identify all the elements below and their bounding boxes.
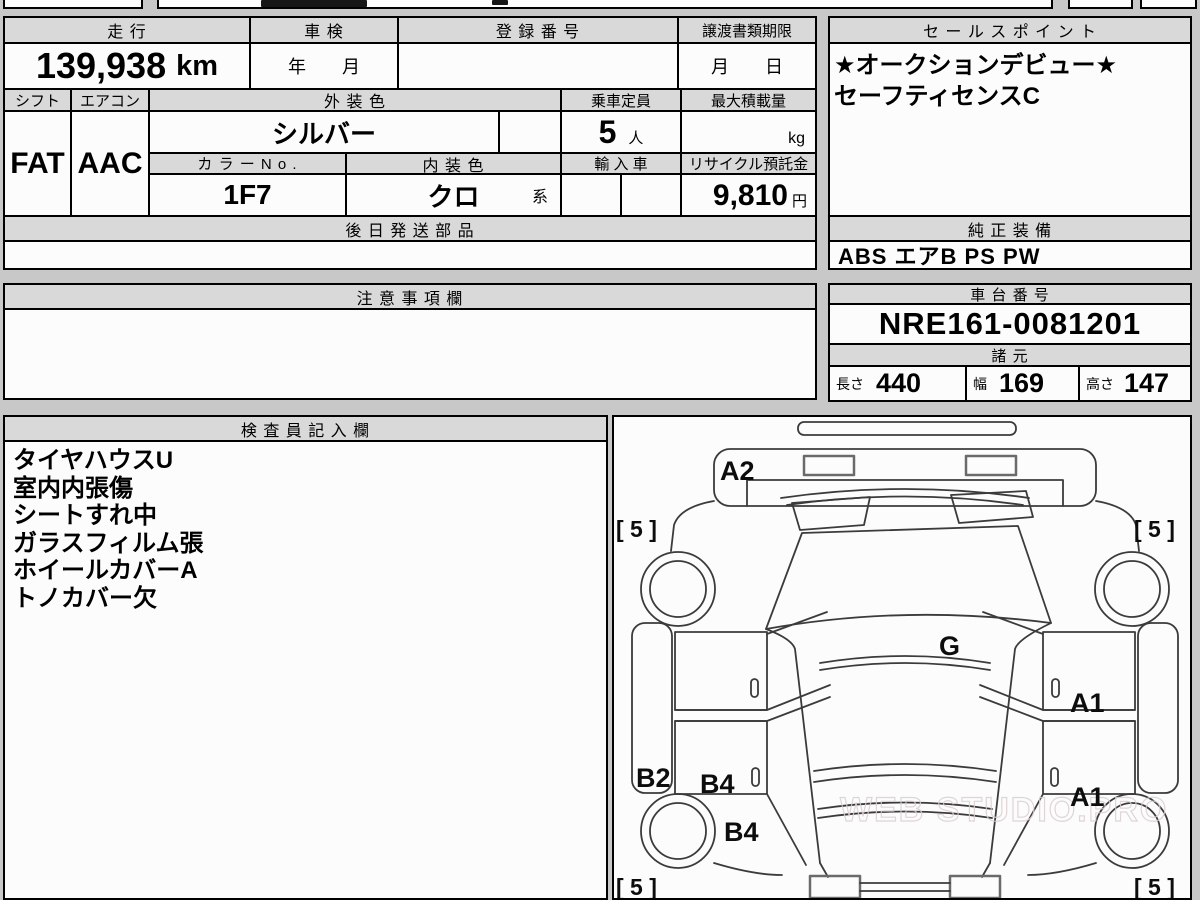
left-rear-quarter-line: [767, 794, 806, 865]
interior-color-text: クロ: [427, 177, 479, 214]
spec-width: 幅 169: [967, 367, 1080, 400]
notes-panel: 注 意 事 項 欄: [3, 283, 817, 400]
rear-left-wheel: [641, 794, 715, 868]
left-door-slant: [767, 612, 827, 634]
windshield-shape: [766, 526, 1051, 629]
interior-color-suffix: 系: [532, 183, 548, 207]
right-sill-shape: [1138, 623, 1178, 793]
chassis-specs-panel: 車 台 番 号 NRE161-0081201 諸 元 長さ 440 幅 169 …: [828, 283, 1192, 402]
imported-cell-1: [562, 175, 622, 217]
cabin-band-line: [814, 764, 996, 771]
inspection-value: 年 月: [251, 44, 399, 90]
inspector-notes-header: 検 査 員 記 入 欄: [5, 417, 606, 442]
sales-point-body: ★オークションデビュー★ セーフティセンスC: [830, 44, 1190, 217]
clipped-top-cell: [1140, 0, 1197, 9]
left-front-fender-line: [671, 501, 714, 551]
mileage-header: 走 行: [5, 18, 251, 44]
recycle-deposit-number: 9,810: [713, 181, 788, 211]
car-top-view-diagram: WEB STUDIO.PRO A2 G A1 A1 B2 B4 B4 [ 5 ]…: [614, 417, 1190, 898]
cabin-left-edge: [766, 629, 820, 863]
registration-value: [399, 44, 679, 90]
tire-depth-rear-left: [ 5 ]: [616, 874, 657, 898]
spec-height: 高さ 147: [1080, 367, 1190, 400]
taillight-shape: [810, 876, 860, 898]
mileage-value: 139,938 km: [5, 44, 251, 90]
wiper-zone-shape: [792, 497, 870, 530]
taillight-shape: [950, 876, 1000, 898]
front-bumper-shape: [714, 449, 1096, 506]
tire-depth-rear-right: [ 5 ]: [1134, 874, 1175, 898]
color-no-header: カ ラ ー N o .: [150, 154, 347, 175]
mileage-number: 139,938: [36, 45, 166, 87]
damage-label-a1-front: A1: [1070, 688, 1105, 718]
front-left-wheel: [641, 552, 715, 626]
recycle-deposit-header: リサイクル預託金: [682, 154, 815, 175]
height-label: 高さ: [1086, 374, 1114, 394]
inspector-notes-panel: 検 査 員 記 入 欄 タイヤハウスU 室内内張傷 シートすれ中 ガラスフィルム…: [3, 415, 608, 900]
shift-header: シフト: [5, 90, 72, 112]
inspector-note-line: ガラスフィルム張: [13, 530, 614, 558]
clipped-text-remnant: [492, 0, 508, 5]
damage-label-a1-rear: A1: [1070, 782, 1105, 812]
length-label: 長さ: [836, 374, 864, 394]
rear-left-wheel-inner: [650, 803, 706, 859]
exterior-color-code-cell: [500, 112, 562, 154]
capacity-value: 5 人: [562, 112, 682, 154]
shift-value: FAT: [5, 112, 72, 217]
sales-point-line: ★オークションデビュー★: [834, 50, 1186, 81]
clipped-top-cell: [157, 0, 1053, 9]
door-handle-icon: [1052, 679, 1059, 697]
right-front-fender-line: [1096, 501, 1139, 551]
capacity-unit: 人: [628, 127, 643, 148]
tire-depth-front-right: [ 5 ]: [1134, 516, 1175, 542]
capacity-number: 5: [599, 116, 617, 148]
left-crease-line: [675, 697, 830, 721]
registration-header: 登 録 番 号: [399, 18, 679, 44]
cabin-band-line: [820, 663, 990, 670]
cabin-band-line: [820, 656, 990, 663]
inspection-header: 車 検: [251, 18, 399, 44]
roof-strip-shape: [798, 422, 1016, 435]
width-label: 幅: [973, 374, 987, 394]
notes-body: [5, 310, 815, 398]
capacity-header: 乗車定員: [562, 90, 682, 112]
later-parts-header: 後 日 発 送 部 品: [5, 217, 815, 242]
mileage-unit: km: [176, 50, 218, 83]
exterior-color-value: シルバー: [150, 112, 500, 154]
inspector-note-line: タイヤハウスU: [13, 447, 614, 475]
watermark: WEB STUDIO.PRO: [840, 791, 1168, 829]
max-load-header: 最大積載量: [682, 90, 815, 112]
spec-length: 長さ 440: [830, 367, 967, 400]
notes-header: 注 意 事 項 欄: [5, 285, 815, 310]
damage-label-b2: B2: [636, 763, 671, 793]
left-front-door-shape: [675, 632, 767, 710]
inspector-note-line: ホイールカバーA: [13, 557, 614, 585]
door-handle-icon: [752, 768, 759, 786]
tire-depth-front-left: [ 5 ]: [616, 516, 657, 542]
car-diagram-panel: WEB STUDIO.PRO A2 G A1 A1 B2 B4 B4 [ 5 ]…: [612, 415, 1192, 900]
right-door-slant: [983, 612, 1043, 634]
chassis-no-header: 車 台 番 号: [830, 285, 1190, 305]
door-handle-icon: [1051, 768, 1058, 786]
specs-header: 諸 元: [830, 345, 1190, 367]
width-value: 169: [999, 368, 1044, 399]
front-right-wheel: [1095, 552, 1169, 626]
height-value: 147: [1124, 368, 1169, 399]
max-load-value: kg: [682, 112, 815, 154]
transfer-deadline-value: 月 日: [679, 44, 815, 90]
aircon-value: AAC: [72, 112, 150, 217]
exterior-color-header: 外 装 色: [150, 90, 562, 112]
transfer-deadline-header: 譲渡書類期限: [679, 18, 815, 44]
clipped-text-remnant: [261, 0, 367, 7]
main-info-table: 走 行 車 検 登 録 番 号 譲渡書類期限 139,938 km 年 月 月 …: [3, 16, 817, 270]
length-value: 440: [876, 368, 921, 399]
inspector-notes-body: タイヤハウスU 室内内張傷 シートすれ中 ガラスフィルム張 ホイールカバーA ト…: [5, 442, 622, 617]
damage-label-b4-door: B4: [700, 769, 735, 799]
rear-corner-line: [1028, 863, 1096, 875]
damage-label-a2: A2: [720, 456, 755, 486]
recycle-deposit-value: 9,810 円: [682, 175, 815, 217]
door-handle-icon: [751, 679, 758, 697]
front-right-wheel-inner: [1104, 561, 1160, 617]
sales-point-line: セーフティセンスC: [834, 81, 1186, 112]
front-left-wheel-inner: [650, 561, 706, 617]
damage-label-g: G: [939, 631, 960, 661]
genuine-equipment-header: 純 正 装 備: [830, 217, 1190, 242]
auction-sheet: 走 行 車 検 登 録 番 号 譲渡書類期限 139,938 km 年 月 月 …: [0, 0, 1200, 900]
rear-corner-line: [714, 863, 782, 875]
later-parts-value: [5, 242, 815, 268]
cabin-band-line: [814, 775, 996, 782]
sales-point-header: セ ー ル ス ポ イ ン ト: [830, 18, 1190, 44]
right-crease-line: [980, 697, 1135, 721]
inspector-note-line: 室内内張傷: [13, 475, 614, 503]
headlight-shape: [966, 456, 1016, 475]
chassis-no-value: NRE161-0081201: [830, 305, 1190, 345]
sales-point-panel: セ ー ル ス ポ イ ン ト ★オークションデビュー★ セーフティセンスC 純…: [828, 16, 1192, 270]
aircon-header: エアコン: [72, 90, 150, 112]
genuine-equipment-value: ABS エアB PS PW: [830, 242, 1190, 268]
clipped-top-cell: [1068, 0, 1133, 9]
imported-header: 輸 入 車: [562, 154, 682, 175]
color-no-value: 1F7: [150, 175, 347, 217]
damage-label-b4-fender: B4: [724, 817, 759, 847]
recycle-deposit-unit: 円: [792, 190, 807, 211]
headlight-shape: [804, 456, 854, 475]
imported-cell-2: [622, 175, 682, 217]
inspector-note-line: トノカバー欠: [13, 585, 614, 613]
wiper-zone-shape: [951, 491, 1033, 523]
interior-color-header: 内 装 色: [347, 154, 562, 175]
inspector-note-line: シートすれ中: [13, 502, 614, 530]
interior-color-value: クロ 系: [347, 175, 562, 217]
clipped-top-cell: [3, 0, 143, 9]
